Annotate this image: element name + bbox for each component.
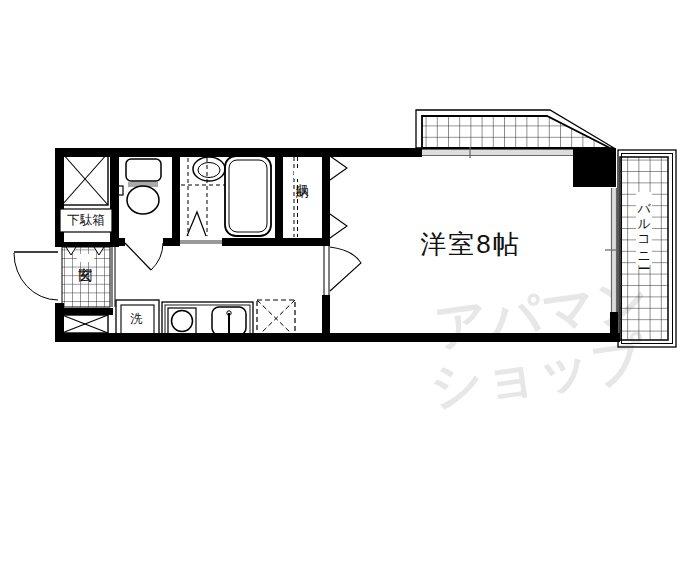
- bath-folding-door: [181, 158, 225, 236]
- storage-label: 収納: [294, 171, 310, 179]
- shoe-cabinet-label: 下駄箱: [60, 212, 112, 229]
- closet-door-triangle: [330, 214, 347, 238]
- upper-balcony: [416, 110, 614, 148]
- storage-closet: [294, 156, 347, 238]
- entrance-door-arc: [14, 252, 58, 300]
- refrigerator-dashed-box: [257, 300, 295, 337]
- stove-burner-icon: [168, 308, 196, 334]
- toilet-icon: [118, 159, 161, 214]
- entrance-label: 玄関: [77, 254, 94, 262]
- corner-pillar: [573, 148, 616, 187]
- kitchen-sink-icon: [212, 307, 246, 335]
- toilet-door-arc: [125, 243, 163, 270]
- floor-plan-canvas: アパマン ショップ: [0, 0, 690, 575]
- window-balcony: [605, 188, 618, 312]
- balcony-label: バルコニー: [636, 192, 652, 265]
- bath-threshold: [180, 240, 222, 244]
- bathtub-icon: [225, 156, 271, 236]
- pipe-space-box: [62, 153, 108, 205]
- lower-crossed-box: [62, 315, 108, 333]
- closet-door-triangle: [330, 156, 347, 180]
- room-door: [324, 246, 361, 295]
- floor-plan-drawing: [0, 0, 690, 575]
- washer-label: 洗: [129, 311, 144, 328]
- washbasin-icon: [193, 157, 225, 181]
- main-room-label: 洋室8帖: [408, 227, 533, 262]
